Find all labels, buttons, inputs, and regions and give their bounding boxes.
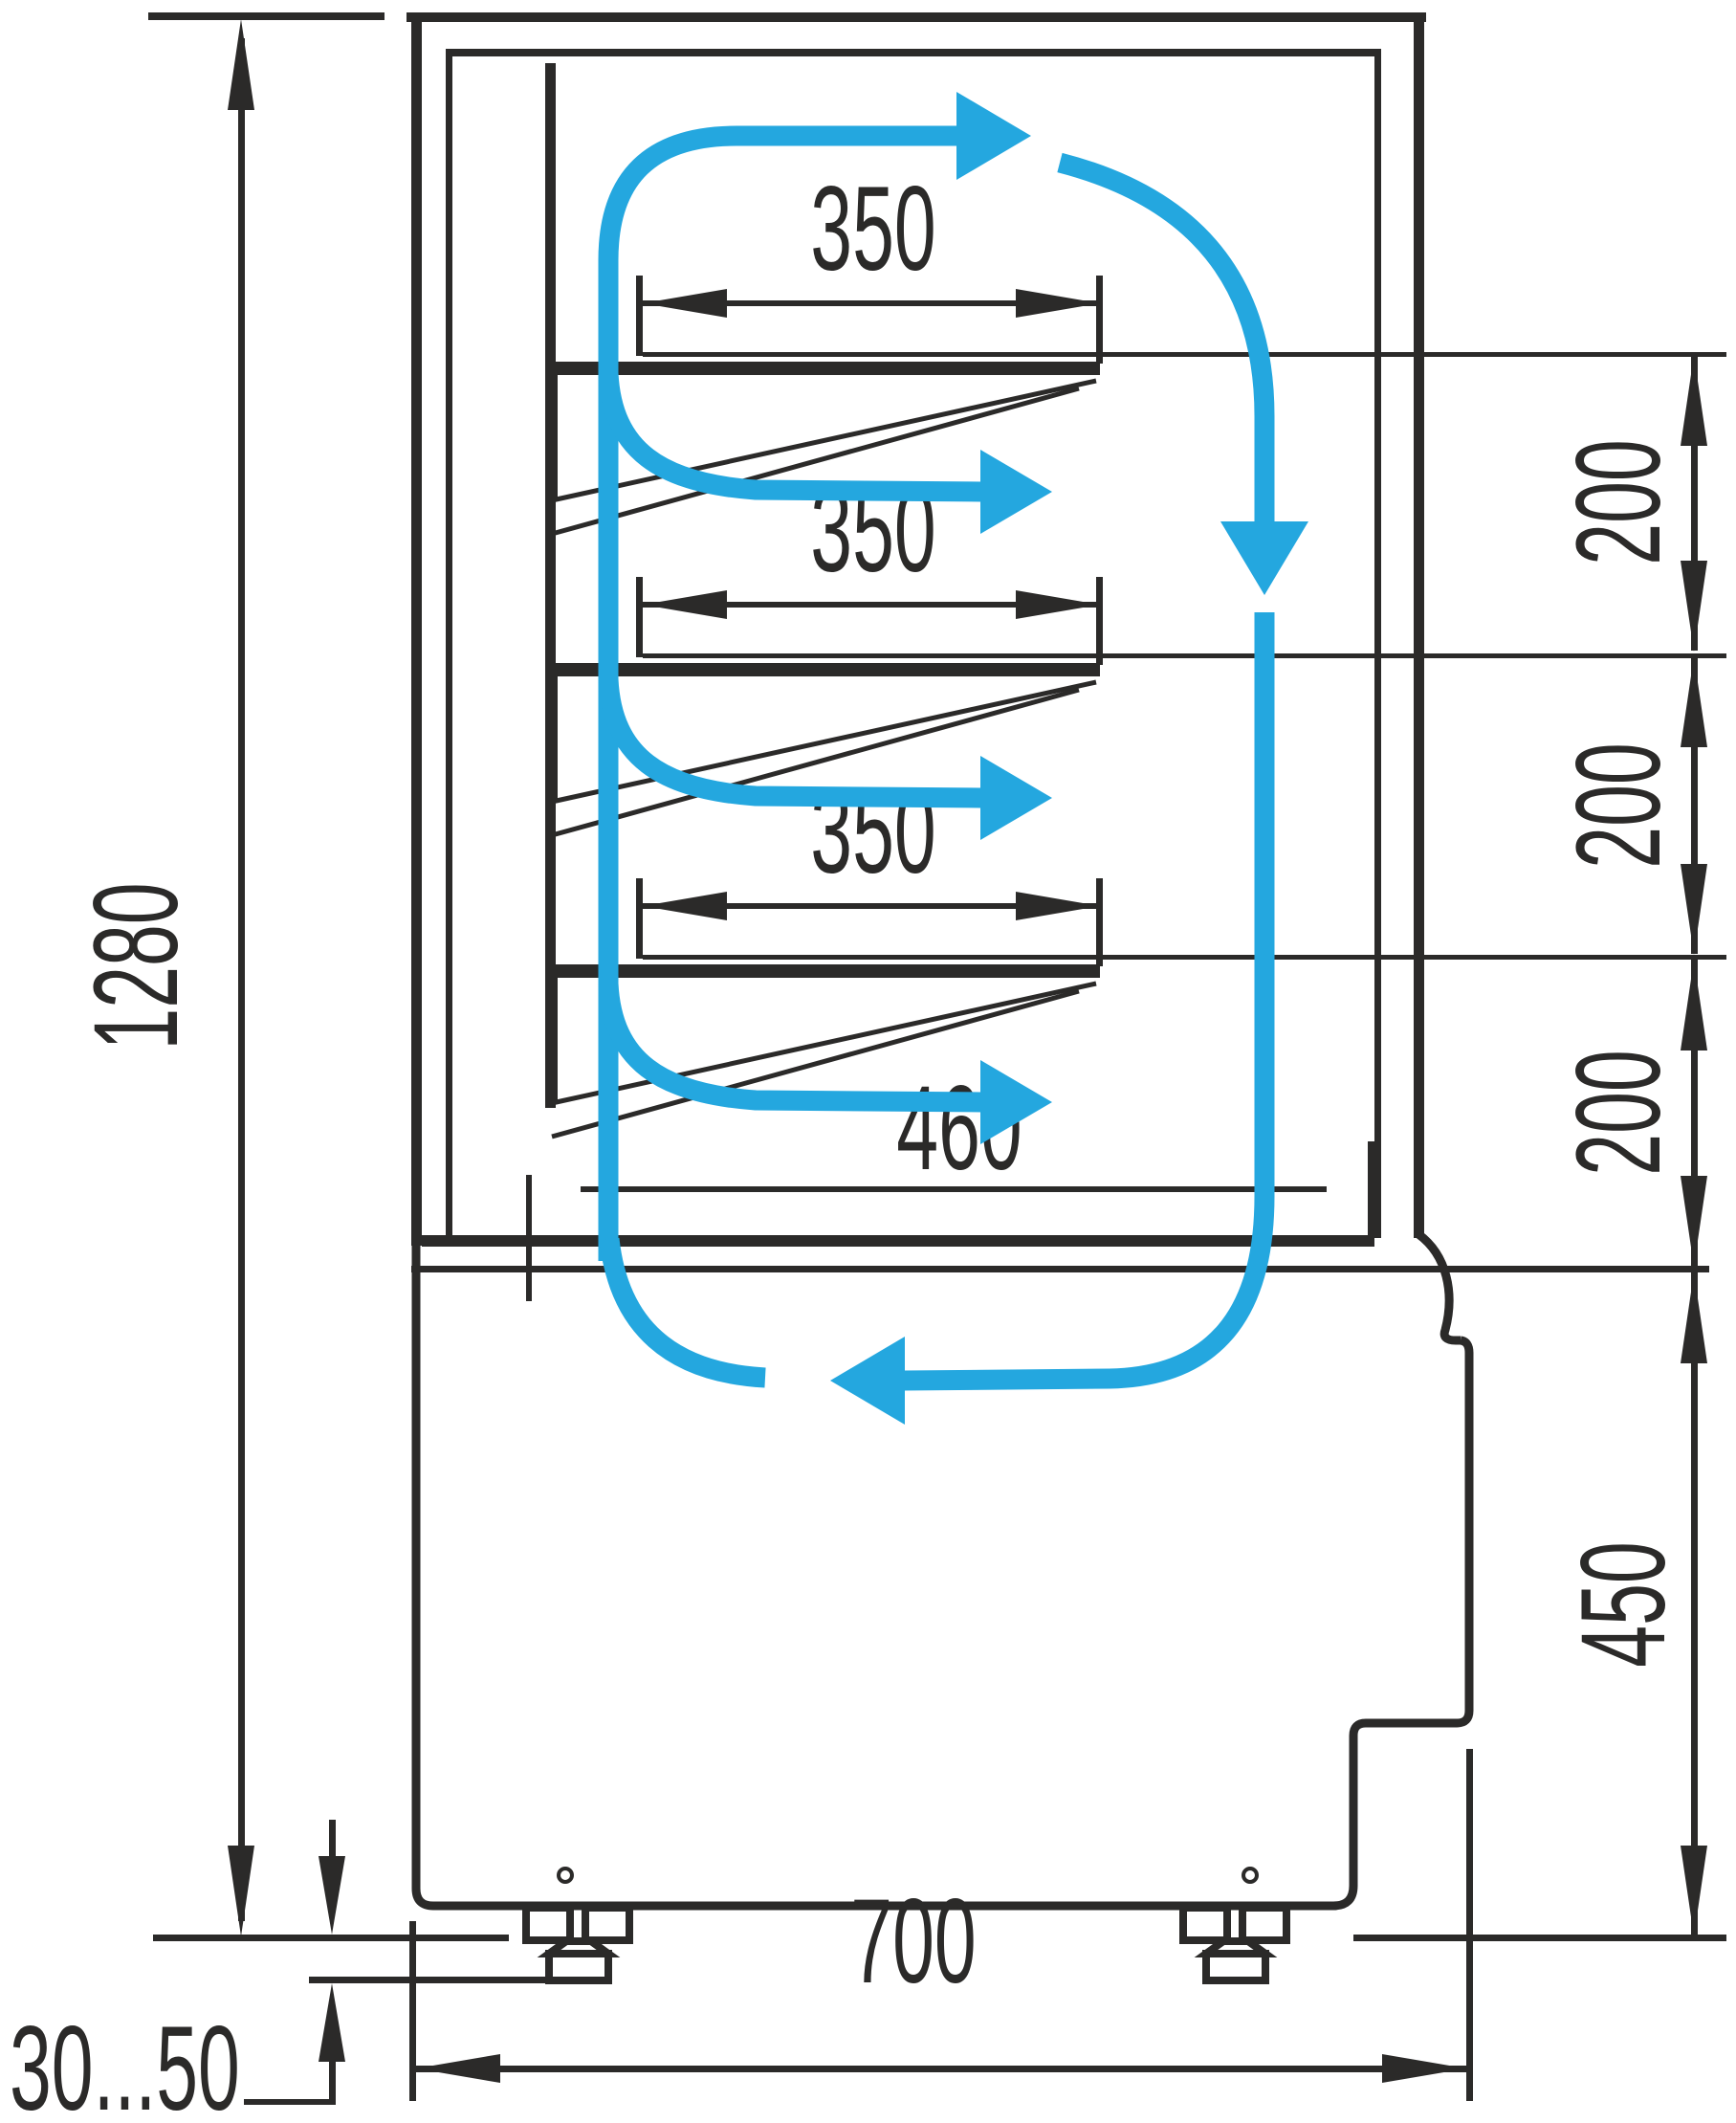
airflow-loop-close xyxy=(609,1239,765,1378)
leader-line xyxy=(244,2099,336,2105)
arrow-down-icon xyxy=(1681,1176,1707,1267)
dimension-shelf-depth-top: 350 xyxy=(636,163,1103,364)
airflow-branch-2-arrow-icon xyxy=(980,756,1052,840)
shelf-1 xyxy=(546,352,1726,534)
airflow-arrow-left-icon xyxy=(830,1337,905,1425)
airflow-arrow-right-top-icon xyxy=(956,92,1031,180)
ext-bottom xyxy=(1353,1935,1726,1941)
base-outline xyxy=(416,1244,1469,1906)
airflow-loop-right-descend xyxy=(1060,163,1264,521)
top-panel-outer-line xyxy=(407,12,1426,22)
arrow-up-icon xyxy=(1681,960,1707,1050)
label-base-height: 450 xyxy=(1557,1541,1691,1667)
ext-right xyxy=(1096,878,1103,966)
leg-left-nut-a xyxy=(526,1908,570,1940)
shelf-2-bracket xyxy=(546,676,558,802)
ext-right xyxy=(1466,1749,1473,2101)
shelf-2-front-edge-line xyxy=(643,653,1726,658)
arrow-up-icon xyxy=(1681,1272,1707,1363)
arrow-down-icon xyxy=(1681,561,1707,652)
top-panel-inner-line xyxy=(448,49,1377,56)
arrow-shaft-bottom xyxy=(329,2059,336,2105)
leg-right xyxy=(1183,1908,1286,1980)
display-case-diagram: 1280 350 350 350 xyxy=(0,0,1736,2123)
ext-left xyxy=(636,878,643,959)
screw-mark-right xyxy=(1243,1869,1257,1882)
label-shelf-depth-lower: 350 xyxy=(810,765,935,899)
arrow-down-icon xyxy=(1681,1846,1707,1936)
technical-drawing-page: 1280 350 350 350 xyxy=(0,0,1736,2123)
dim-line-1280 xyxy=(238,38,245,1921)
dim-line xyxy=(416,2066,1466,2072)
arrow-up-icon xyxy=(1681,355,1707,446)
arrow-up-icon xyxy=(319,1983,345,2062)
airflow-loop-right-bottom xyxy=(903,612,1264,1381)
arrow-left-icon xyxy=(643,892,727,920)
leg-right-nut-b xyxy=(1242,1908,1286,1940)
arrow-right-icon xyxy=(1016,289,1100,318)
shelf-3-bracket xyxy=(546,978,558,1103)
arrow-right-icon xyxy=(1016,590,1100,619)
floor-line xyxy=(309,1977,607,1983)
back-wall-outer xyxy=(411,12,422,1246)
dimension-shelf-gaps: 200 200 200 xyxy=(1552,355,1707,1270)
arrow-right-icon xyxy=(1382,2054,1466,2083)
arrow-left-icon xyxy=(416,2054,500,2083)
dimensions: 1280 350 350 350 xyxy=(10,12,1726,2123)
front-glass-bottom-frame xyxy=(1368,1141,1381,1238)
ext-line-top xyxy=(148,12,385,20)
arrow-down-icon xyxy=(1681,864,1707,955)
ext-left xyxy=(636,577,643,657)
shelf-1-front-edge-line xyxy=(643,352,1726,357)
arrow-up-icon xyxy=(1681,656,1707,747)
ext-bottom-left xyxy=(153,1935,509,1941)
label-leg-adjust: 30...50 xyxy=(10,2002,240,2123)
arrow-left-icon xyxy=(643,590,727,619)
back-wall-inner xyxy=(446,49,452,1241)
ext-left xyxy=(409,1921,416,2101)
label-gap-bottom: 200 xyxy=(1552,1050,1686,1175)
label-gap-top: 200 xyxy=(1552,439,1686,564)
leg-right-foot xyxy=(1206,1954,1265,1980)
ext-right xyxy=(1096,276,1103,364)
shelf-3 xyxy=(546,955,1726,1137)
leg-right-nut-a xyxy=(1183,1908,1227,1940)
front-glass-inner xyxy=(1374,49,1381,1236)
front-glass-bottom-curve xyxy=(1418,1234,1461,1340)
leg-left-foot xyxy=(549,1954,608,1980)
leg-left-nut-b xyxy=(585,1908,629,1940)
screw-mark-left xyxy=(559,1869,572,1882)
shelf-1-board xyxy=(548,362,1100,375)
well-floor xyxy=(422,1235,1374,1247)
dimension-overall-height: 1280 xyxy=(70,12,385,1936)
label-overall-depth: 700 xyxy=(850,1875,976,2009)
ext-left xyxy=(636,276,643,356)
label-overall-height: 1280 xyxy=(70,882,204,1050)
front-glass-outer xyxy=(1414,12,1424,1238)
arrow-down-icon xyxy=(228,1846,254,1936)
label-gap-middle: 200 xyxy=(1552,742,1686,868)
dim-shaft-450 xyxy=(1691,1272,1698,1936)
shelf-3-board xyxy=(548,964,1100,978)
arrow-left-icon xyxy=(643,289,727,318)
airflow-arrow-down-icon xyxy=(1220,521,1308,595)
shelf-2 xyxy=(546,653,1726,835)
dimension-leg-adjust: 30...50 xyxy=(10,1820,607,2123)
arrow-right-icon xyxy=(1016,892,1100,920)
arrow-down-icon xyxy=(319,1856,345,1935)
ext-left xyxy=(526,1175,532,1301)
air-duct-panel xyxy=(545,63,556,1108)
shelf-3-front-edge-line xyxy=(643,955,1726,960)
airflow-branch-1-arrow-icon xyxy=(980,450,1052,534)
leg-left xyxy=(526,1908,629,1980)
arrow-up-icon xyxy=(228,19,254,110)
label-shelf-depth-top: 350 xyxy=(810,163,935,297)
ext-right xyxy=(1096,577,1103,665)
shelf-1-bracket xyxy=(546,375,558,500)
shelf-2-board xyxy=(548,663,1100,676)
